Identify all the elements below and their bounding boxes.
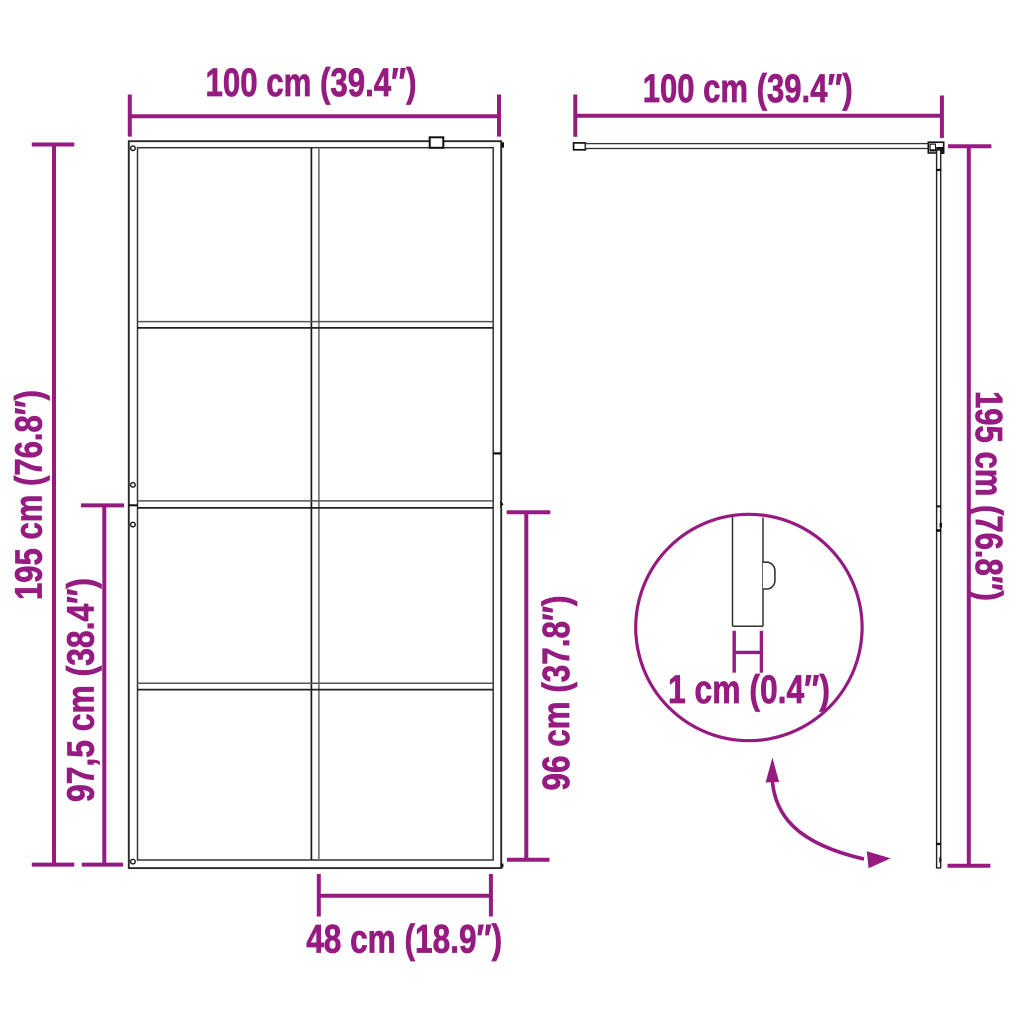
svg-text:195 cm (76.8″): 195 cm (76.8″) — [9, 390, 51, 600]
svg-text:100 cm (39.4″): 100 cm (39.4″) — [206, 61, 417, 105]
svg-text:97,5 cm (38.4″): 97,5 cm (38.4″) — [61, 578, 103, 802]
svg-text:1 cm (0.4″): 1 cm (0.4″) — [668, 668, 830, 712]
svg-text:48 cm (18.9″): 48 cm (18.9″) — [306, 918, 502, 962]
svg-text:195 cm (76.8″): 195 cm (76.8″) — [967, 391, 1009, 601]
svg-text:100 cm (39.4″): 100 cm (39.4″) — [643, 67, 853, 111]
svg-text:96 cm (37.8″): 96 cm (37.8″) — [536, 596, 578, 791]
